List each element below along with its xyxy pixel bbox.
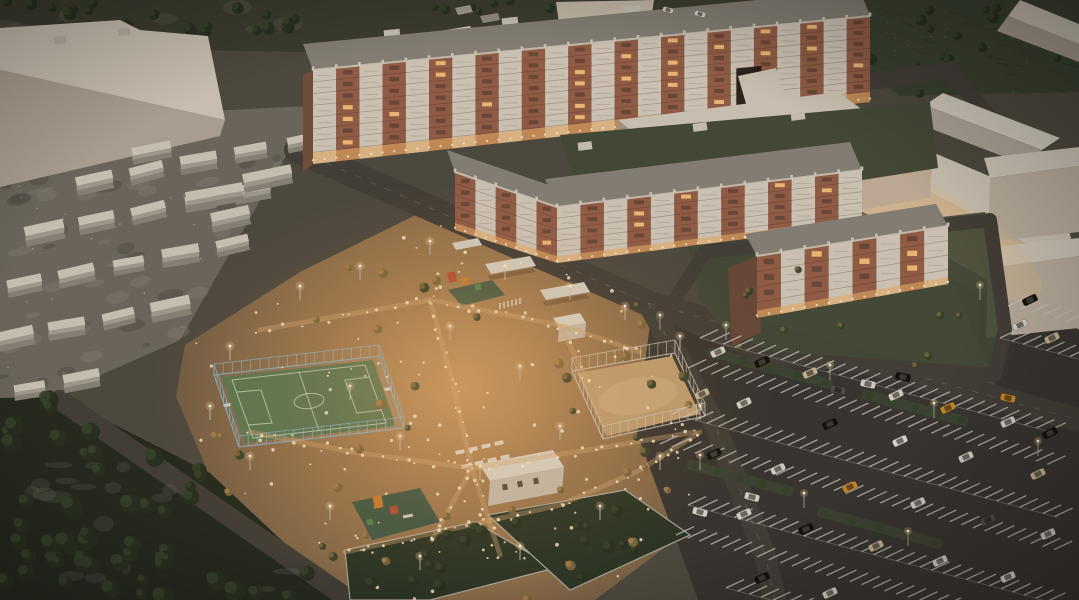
- vignette: [0, 0, 1079, 600]
- architectural-render-viewport: [0, 0, 1079, 600]
- atmosphere: [0, 0, 1079, 600]
- render-scene: [0, 0, 1079, 600]
